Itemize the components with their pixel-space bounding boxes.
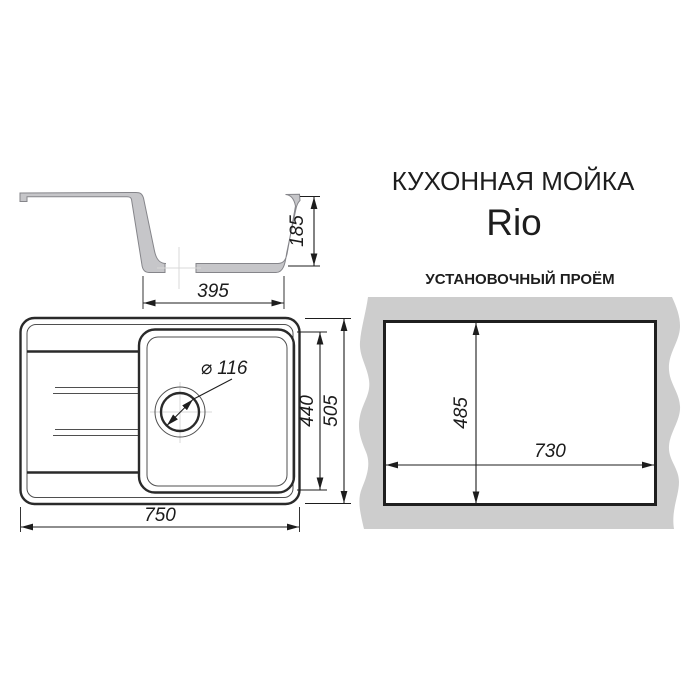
installation-title: УСТАНОВОЧНЫЙ ПРОЁМ — [425, 270, 614, 288]
dim-sinkwidth-label: 505 — [321, 395, 342, 427]
top-view: ⌀ 116 440 505 750 — [21, 318, 352, 532]
dim-drain-label: ⌀ 116 — [200, 358, 247, 379]
page-title: КУХОННАЯ МОЙКА — [392, 166, 635, 196]
technical-drawing: 185 395 КУХОННАЯ МОЙКА Rio УСТАНОВОЧНЫЙ … — [0, 0, 700, 700]
bowl-outer-outline — [139, 330, 294, 493]
model-name: Rio — [486, 202, 542, 243]
dim-bowllength-label: 440 — [297, 395, 318, 427]
cutout-rectangle — [385, 322, 656, 505]
cross-section-view: 185 395 — [20, 193, 320, 310]
dim-bowlwidth-label: 395 — [197, 281, 229, 302]
drain-leader-line — [193, 379, 232, 399]
dim-sinklength-label: 750 — [144, 505, 176, 526]
dim-depth-label: 185 — [287, 215, 308, 247]
installation-view: 485 730 — [359, 297, 680, 529]
cross-section-profile-right — [196, 194, 300, 272]
cross-section-profile-left — [20, 193, 166, 273]
dim-cutoutlength-label: 730 — [534, 441, 566, 462]
dim-cutoutheight-label: 485 — [451, 397, 472, 429]
drawing-page: 185 395 КУХОННАЯ МОЙКА Rio УСТАНОВОЧНЫЙ … — [0, 0, 700, 700]
